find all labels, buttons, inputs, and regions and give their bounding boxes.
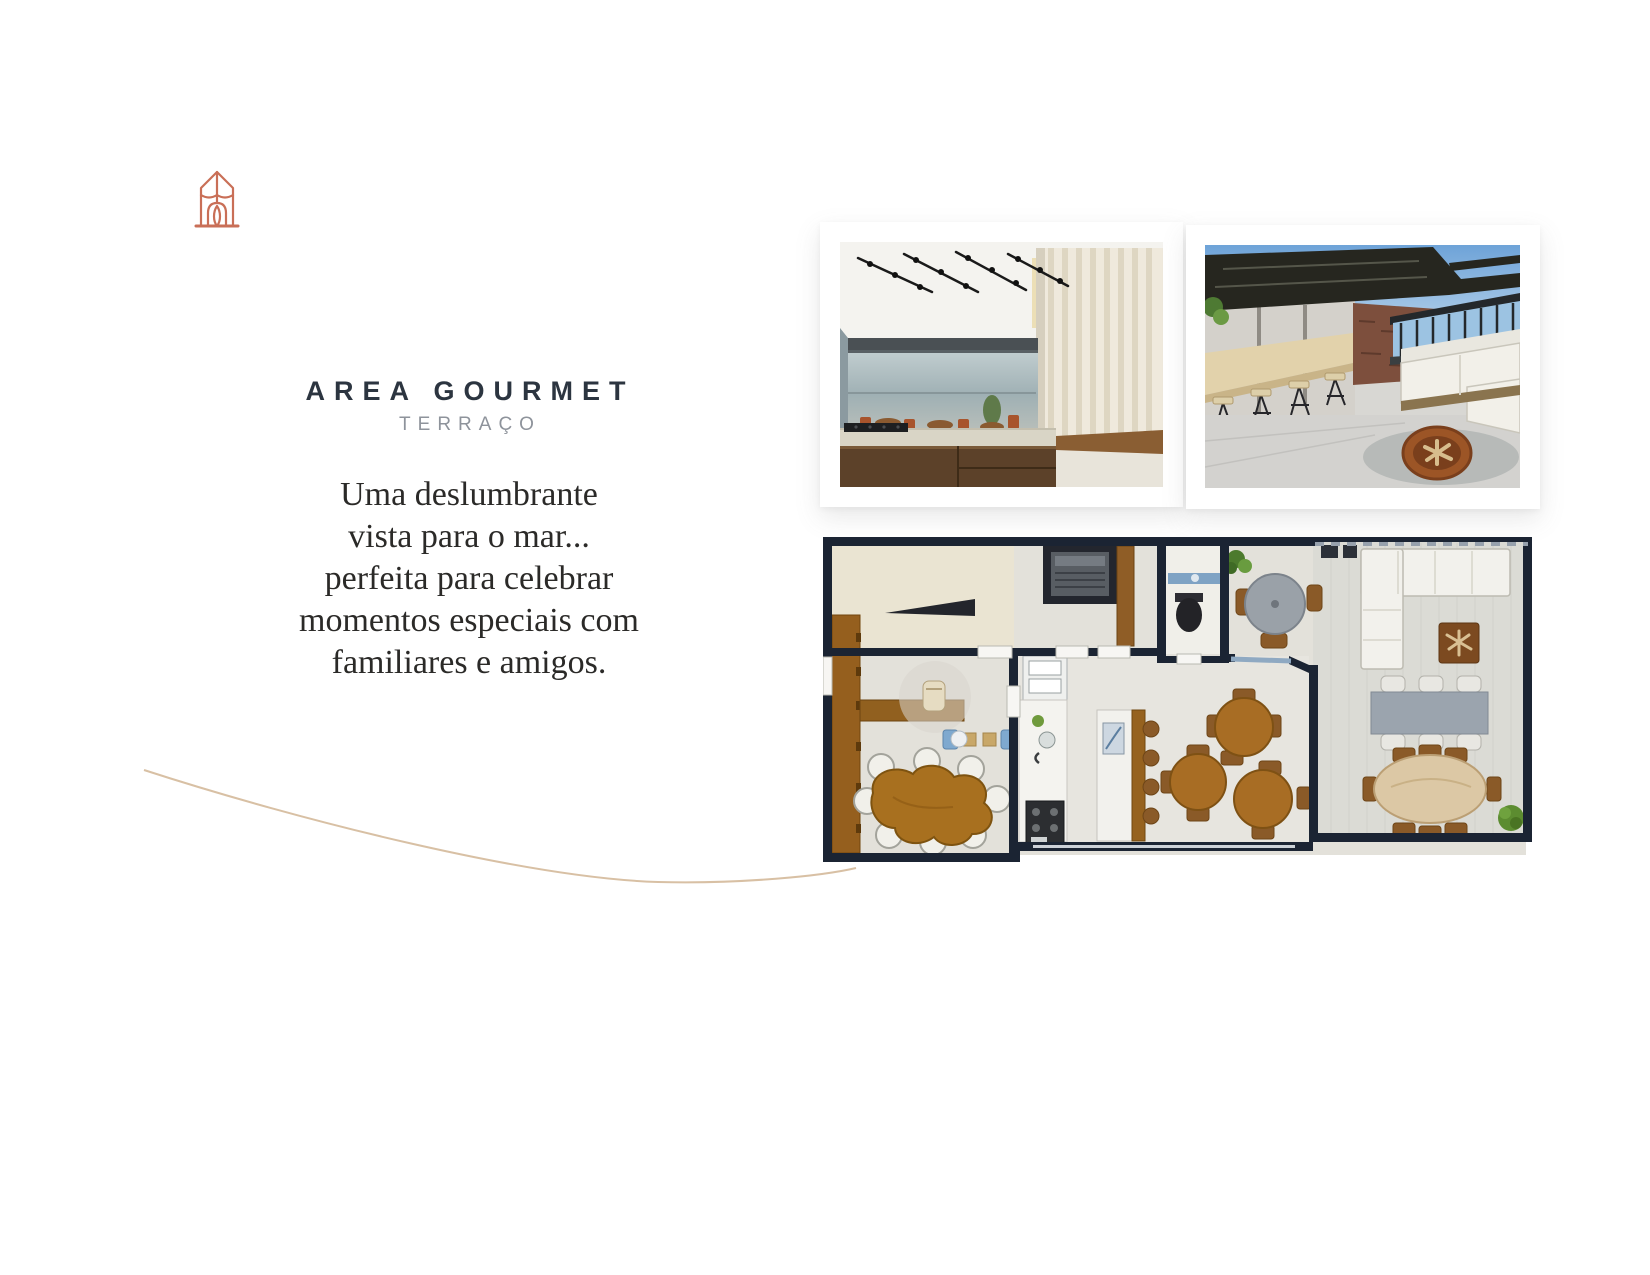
heading-block: AREA GOURMET TERRAÇO: [240, 376, 700, 436]
photo-card-terrace: [1186, 225, 1540, 509]
gourmet-kitchen-render-image: [840, 242, 1163, 487]
gourmet-kitchen-photo: [840, 242, 1163, 487]
intro-line: vista para o mar...: [222, 516, 716, 558]
brochure-page: AREA GOURMET TERRAÇO Uma deslumbrante vi…: [0, 0, 1650, 1275]
floor-plan-image: [823, 537, 1532, 862]
intro-line: momentos especiais com: [222, 600, 716, 642]
page-subtitle: TERRAÇO: [240, 414, 700, 436]
curve-line-icon: [138, 756, 862, 896]
terrace-render-image: [1205, 245, 1520, 488]
floor-plan: [823, 537, 1532, 862]
terrace-photo: [1205, 245, 1520, 488]
logo: [194, 168, 240, 230]
intro-line: perfeita para celebrar: [222, 558, 716, 600]
intro-line: Uma deslumbrante: [222, 474, 716, 516]
intro-paragraph: Uma deslumbrante vista para o mar... per…: [222, 474, 716, 684]
house-arch-logo-icon: [194, 168, 240, 230]
page-title: AREA GOURMET: [240, 376, 700, 407]
photo-card-gourmet-kitchen: [820, 222, 1183, 507]
decorative-curve: [138, 756, 862, 896]
intro-line: familiares e amigos.: [222, 642, 716, 684]
